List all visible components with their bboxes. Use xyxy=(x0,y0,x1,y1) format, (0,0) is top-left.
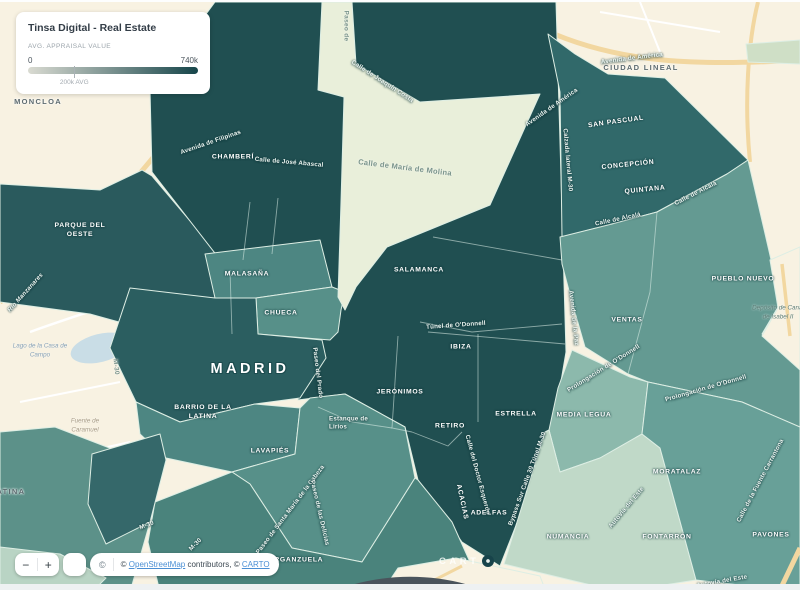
label-avenida-de-américa: Avenida de América xyxy=(524,87,580,130)
label-lago-de-la-casa-de-campo: Lago de la Casa de Campo xyxy=(9,343,71,360)
attribution-divider xyxy=(113,558,114,571)
attribution-prefix: © xyxy=(121,560,129,569)
label-paseo-de: Paseo de xyxy=(341,11,350,42)
label-avenida-de-filipinas: Avenida de Filipinas xyxy=(180,129,243,158)
page: MONCLOACIUDAD LINEALLATINAAvenida de Fil… xyxy=(0,0,800,590)
label-estrella: ESTRELLA xyxy=(495,409,536,418)
label-salamanca: SALAMANCA xyxy=(394,265,444,274)
map-canvas[interactable]: MONCLOACIUDAD LINEALLATINAAvenida de Fil… xyxy=(0,2,800,584)
label-calle-de-alcalá: Calle de Alcalá xyxy=(594,211,641,229)
label-quintana: QUINTANA xyxy=(624,183,666,196)
label-calle-de-maría-de-molina: Calle de María de Molina xyxy=(358,157,453,179)
label-ventas: VENTAS xyxy=(611,315,642,324)
label-acacias: ACACIAS xyxy=(454,484,470,521)
legend-subtitle: AVG. APPRAISAL VALUE xyxy=(28,43,198,50)
label-calle-de-joaquín-costa: Calle de Joaquín Costa xyxy=(349,59,414,105)
label-barrio-de-la-latina: BARRIO DE LA LATINA xyxy=(171,403,235,421)
label-jerónimos: JERÓNIMOS xyxy=(376,387,423,396)
label-adelfas: ADELFAS xyxy=(471,508,508,517)
label-madrid: MADRID xyxy=(211,360,290,380)
zoom-controls: − + xyxy=(15,553,59,576)
search-button[interactable] xyxy=(63,553,86,576)
legend-avg-label: 200k AVG xyxy=(60,79,198,86)
label-prolongación-de-o-donnell: Prolongación de O'Donnell xyxy=(566,343,642,395)
label-avenida-de-la-paz: Avenida de la Paz xyxy=(566,290,580,346)
zoom-in-button[interactable]: + xyxy=(38,553,60,576)
label-bypass-sur-calle-30-túnel-m-30: Bypass Sur Calle 30 Túnel M-30 xyxy=(507,431,549,527)
label-calle-de-alcalá: Calle de Alcalá xyxy=(673,180,718,209)
label-prolongación-de-o-donnell: Prolongación de O'Donnell xyxy=(664,373,747,404)
label-avenida-de-américa: Avenida de América xyxy=(601,51,664,67)
label-chueca: CHUECA xyxy=(264,308,297,317)
label-depósito-de-canal-de-isabel-ii: Depósito de Canal de Isabel II xyxy=(750,305,800,322)
label-m-30: M-30 xyxy=(188,537,204,553)
osm-link[interactable]: OpenStreetMap xyxy=(129,560,185,569)
legend-gradient-bar xyxy=(28,67,198,74)
label-malasaña: MALASAÑA xyxy=(225,269,270,278)
legend-card: Tinsa Digital - Real Estate AVG. APPRAIS… xyxy=(16,12,210,94)
label-paseo-del-prado: Paseo del Prado xyxy=(310,347,325,399)
attribution-bar: © © OpenStreetMap contributors, © CARTO xyxy=(90,553,279,576)
label-chamberí: CHAMBERÍ xyxy=(212,152,254,161)
map-title: Tinsa Digital - Real Estate xyxy=(28,22,198,34)
legend-max-value: 740k xyxy=(181,56,198,65)
label-moratalaz: MORATALAZ xyxy=(653,467,701,476)
label-parque-del-oeste: PARQUE DEL OESTE xyxy=(51,221,109,239)
label-ciudad-lineal: CIUDAD LINEAL xyxy=(603,63,678,73)
label-paseo-de-las-delicias: Paseo de las Delicias xyxy=(307,480,330,547)
label-moncloa: MONCLOA xyxy=(14,97,62,107)
label-m-30: M-30 xyxy=(139,519,156,532)
label-concepción: CONCEPCIÓN xyxy=(601,158,655,173)
label-san-pascual: SAN PASCUAL xyxy=(587,114,644,131)
label-calzada-lateral-m-30: Calzada lateral M-30 xyxy=(560,128,574,192)
label-numancia: NUMANCIA xyxy=(547,532,590,541)
label-pueblo-nuevo: PUEBLO NUEVO xyxy=(712,274,775,283)
label-calle-de-josé-abascal: Calle de José Abascal xyxy=(254,156,323,170)
label-pavones: PAVONES xyxy=(752,530,789,539)
attribution-text: © OpenStreetMap contributors, © CARTO xyxy=(121,560,270,569)
zoom-out-button[interactable]: − xyxy=(15,553,37,576)
label-calle-de-la-fuente-carrantona: Calle de la Fuente Carrantona xyxy=(735,438,786,524)
legend-avg-tick xyxy=(74,66,75,78)
label-paseo-de-santa-maría-de-la-cabeza: Paseo de Santa María de la Cabeza xyxy=(255,464,328,556)
label-retiro: RETIRO xyxy=(435,421,465,430)
label-media-legua: MEDIA LEGUA xyxy=(556,410,611,419)
label-estanque-de-lirios: Estanque de Lirios xyxy=(329,416,375,433)
label-túnel-de-o-donnell: Túnel de O'Donnell xyxy=(426,320,486,333)
label-calle-del-doctor-esquerdo: Calle del Doctor Esquerdo xyxy=(462,434,491,516)
legend-range: 0 740k xyxy=(28,56,198,65)
carto-link[interactable]: CARTO xyxy=(242,560,270,569)
label-autovía-del-este: Autovía del Este xyxy=(607,486,646,531)
legend-min-value: 0 xyxy=(28,56,32,65)
label-fuente-de-caramuel: Fuente de Caramuel xyxy=(57,418,113,435)
label-m-30: M-30 xyxy=(110,359,120,376)
label-ibiza: IBIZA xyxy=(450,342,471,351)
label-latina: LATINA xyxy=(0,487,25,497)
label-lavapiés: LAVAPIÉS xyxy=(251,446,290,455)
label-río-manzanares: Río Manzanares xyxy=(6,272,46,315)
attribution-middle: contributors, © xyxy=(185,560,242,569)
label-fontarrón: FONTARRÓN xyxy=(642,532,691,541)
attribution-toggle[interactable]: © xyxy=(99,560,106,570)
